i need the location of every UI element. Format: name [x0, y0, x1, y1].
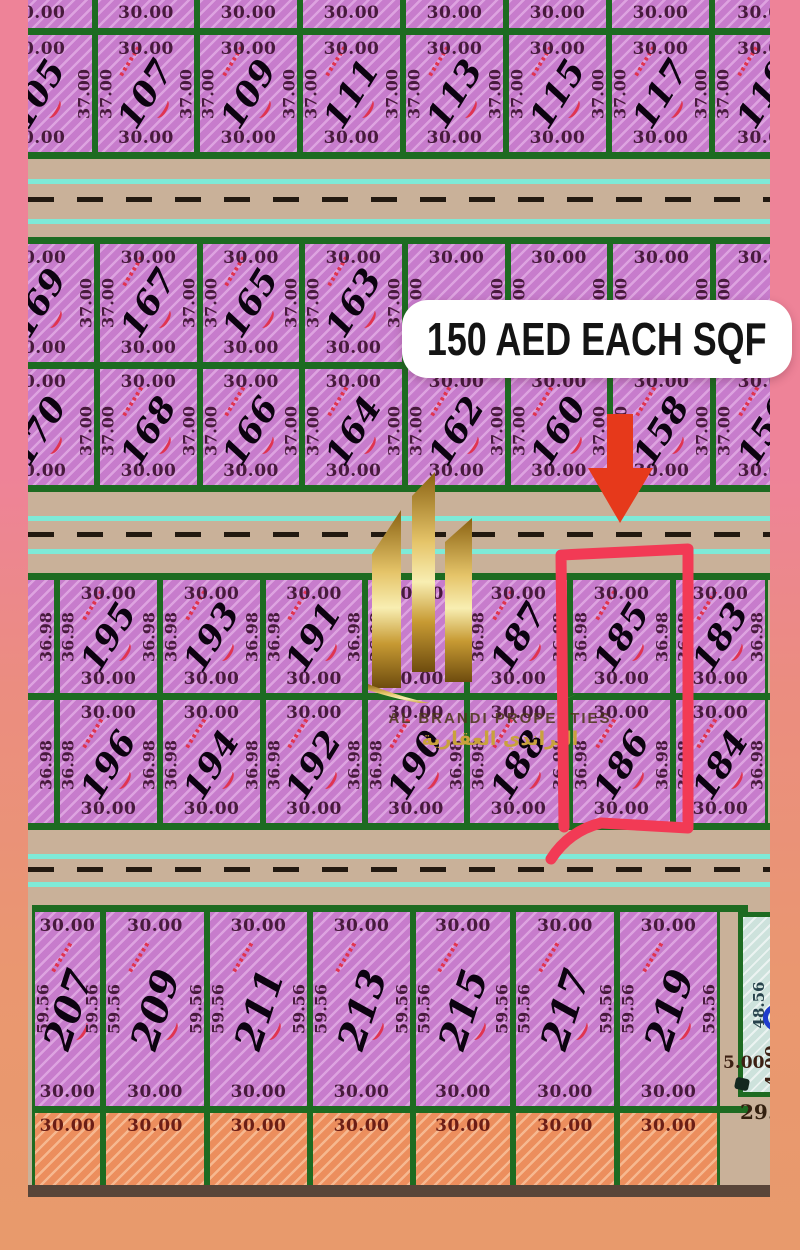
road: [28, 159, 770, 237]
plot-number: 113: [418, 52, 491, 136]
dimension-label: 30.00: [35, 1082, 100, 1102]
dimension-label: 30.00: [416, 1116, 510, 1136]
plot-number: 166: [214, 389, 287, 473]
dimension-label: 30.00: [620, 1082, 717, 1102]
plot-cell: 30.00: [32, 1113, 103, 1185]
plot-number: 164: [317, 389, 390, 473]
plot-block-row-207-219: 30.0030.0059.5659.5620730.0030.0059.5659…: [28, 905, 770, 1113]
dimension-label: 30.00: [200, 3, 297, 23]
plot-cell: 30.00: [513, 1113, 617, 1185]
side-dimension-label: 59.56: [209, 984, 228, 1034]
plot-cell: 30.0030.0059.5659.56211: [207, 905, 310, 1113]
dimension-label: 30.00: [715, 39, 770, 59]
road-stripe: [28, 179, 770, 184]
dimension-label: 30.00: [106, 916, 204, 936]
plot-block-cut-row-top: 30.0030.0030.0030.0030.0030.0030.0030.00: [28, 0, 770, 28]
corner-plot-mark-icon: [759, 1003, 770, 1033]
plot-cell: 30.00: [506, 0, 609, 28]
dimension-label: 30.00: [100, 372, 197, 392]
plot-number: 109: [212, 52, 285, 136]
dimension-label: 30.00: [516, 1116, 614, 1136]
plot-cell: 30.0030.0059.5659.56207: [32, 905, 103, 1113]
road-stripe: [28, 882, 770, 887]
plot-cell: 30.00: [413, 1113, 513, 1185]
side-dimension-label: 36.98: [37, 740, 56, 790]
plot-number: 167: [112, 261, 185, 345]
plot-cell: 30.0030.0059.5659.56209: [103, 905, 207, 1113]
corner-plot-side-label: 4.00: [763, 1045, 770, 1086]
plot-block-cut-row-bottom: 30.0030.0030.0030.0030.0030.0030.00: [28, 1113, 770, 1185]
plot-cell: 30.0030.0037.0037.00107: [95, 28, 197, 159]
dimension-label: 30.00: [163, 703, 260, 723]
dimension-label: 30.00: [620, 916, 717, 936]
dimension-label: 30.00: [303, 3, 400, 23]
dimension-label: 30.00: [416, 1082, 510, 1102]
dimension-label: 30.00: [35, 916, 100, 936]
block-border: [28, 237, 770, 244]
plot-cell: 30.0030.0059.5659.56213: [310, 905, 413, 1113]
plot-cell: 30.0030.0037.0037.00156: [713, 369, 770, 492]
plot-cell: 30.00: [207, 1113, 310, 1185]
plot-cell: 30.0030.0036.9836.98196: [57, 700, 160, 830]
plot-cell: 30.0030.0037.0037.00115: [506, 28, 609, 159]
plot-cell: 30.00: [617, 1113, 720, 1185]
road-stripe: [28, 219, 770, 224]
dimension-label: 30.00: [408, 248, 505, 268]
dimension-label: 30.00: [511, 248, 607, 268]
side-dimension-label: 59.56: [393, 984, 412, 1034]
plot-number: 162: [420, 389, 493, 473]
plot-cell: 30.0030.0037.0037.00105: [28, 28, 95, 159]
plot-number: 169: [28, 261, 75, 345]
side-dimension-label: 37.00: [77, 405, 96, 455]
plot-number: 215: [429, 963, 497, 1055]
dimension-label: 30.00: [305, 372, 402, 392]
plot-number: 209: [121, 963, 189, 1055]
plot-number: 105: [28, 52, 74, 136]
side-dimension-label: 59.56: [597, 984, 616, 1034]
plot-cell: 30.0030.0037.0037.00167: [97, 237, 200, 369]
plot-number: 219: [634, 963, 702, 1055]
plot-cell: 30.00: [300, 0, 403, 28]
plot-number: 194: [175, 723, 248, 807]
plot-cell: 30.00: [310, 1113, 413, 1185]
dimension-label: 30.00: [35, 1116, 100, 1136]
dimension-label: 30.00: [28, 3, 92, 23]
dimension-label: 30.00: [313, 1116, 410, 1136]
dimension-label: 30.00: [106, 1116, 204, 1136]
plot-cell: 30.00: [103, 1113, 207, 1185]
dimension-label: 30.00: [203, 338, 299, 358]
dimension-label: 30.00: [416, 916, 510, 936]
side-dimension-label: 36.98: [37, 611, 56, 661]
road-dimension-label: 29.: [740, 1100, 770, 1124]
plot-number: 195: [72, 595, 145, 679]
plot-cell: 30.0030.0059.5659.56215: [413, 905, 513, 1113]
side-dimension-label: 37.00: [77, 278, 96, 328]
dimension-label: 30.00: [98, 3, 194, 23]
side-dimension-label: 59.56: [415, 984, 434, 1034]
side-dimension-label: 59.56: [105, 984, 124, 1034]
dimension-label: 30.00: [612, 3, 709, 23]
plot-cell: 30.00: [712, 0, 770, 28]
dimension-label: 30.00: [715, 3, 770, 23]
corner-plot-symbol-icon: [734, 1077, 750, 1092]
dimension-label: 30.00: [210, 916, 307, 936]
dimension-label: 30.00: [406, 3, 503, 23]
plot-cell: 30.0030.0036.9836.98195: [57, 573, 160, 700]
plot-cell: 30.00: [95, 0, 197, 28]
side-dimension-label: 59.56: [290, 984, 309, 1034]
plot-cell: 30.0030.0037.0037.00170: [28, 369, 97, 492]
plot-cell: 30.0030.0059.5659.56219: [617, 905, 720, 1113]
side-dimension-label: 59.56: [187, 984, 206, 1034]
dimension-label: 30.00: [516, 916, 614, 936]
plot-cell: 30.00: [197, 0, 300, 28]
price-banner: 150 AED EACH SQF: [402, 300, 792, 378]
plot-cell: 36.9836.98: [28, 700, 57, 830]
plot-number: 170: [28, 389, 75, 473]
dimension-label: 30.00: [313, 916, 410, 936]
plot-cell: 30.00: [28, 0, 95, 28]
plot-number: 115: [521, 52, 594, 136]
highlight-arrow-icon: [588, 414, 654, 524]
side-dimension-label: 59.56: [619, 984, 638, 1034]
plot-cell: 30.0030.0037.0037.00169: [28, 237, 97, 369]
plot-cell: 30.0030.0037.0037.00166: [200, 369, 302, 492]
plot-number: 193: [175, 595, 248, 679]
plot-number: 217: [531, 963, 599, 1055]
plot-number: 117: [624, 52, 697, 136]
price-banner-text: 150 AED EACH SQF: [427, 312, 767, 366]
plot-cell: 30.0030.0037.0037.00111: [300, 28, 403, 159]
plot-number: 107: [109, 52, 182, 136]
side-dimension-label: 37.00: [75, 68, 94, 118]
side-dimension-label: 59.56: [493, 984, 512, 1034]
plot-cell: 30.00: [403, 0, 506, 28]
plot-number: 165: [214, 261, 287, 345]
corner-plot-front-label: 5.00: [723, 1053, 764, 1073]
plot-number: 207: [33, 963, 101, 1055]
dimension-label: 30.00: [210, 1082, 307, 1102]
plot-number: 213: [327, 963, 395, 1055]
plot-highlight-box: [545, 535, 725, 875]
plot-cell: 30.0030.0037.0037.00119: [712, 28, 770, 159]
plot-number: 211: [224, 963, 292, 1055]
dimension-label: 30.00: [106, 1082, 204, 1102]
plot-cell: 30.0030.0037.0037.00163: [302, 237, 405, 369]
plot-cell: 30.0030.0037.0037.00109: [197, 28, 300, 159]
plot-number: 111: [315, 52, 388, 136]
dimension-label: 30.00: [716, 248, 770, 268]
dimension-label: 30.00: [313, 1082, 410, 1102]
plot-number: 119: [728, 52, 770, 136]
block-border: [32, 1106, 748, 1113]
dimension-label: 30.00: [620, 1116, 717, 1136]
dimension-label: 30.00: [613, 248, 710, 268]
plot-number: 168: [112, 389, 185, 473]
plot-cell: 30.0030.0037.0037.00113: [403, 28, 506, 159]
block-border: [28, 152, 770, 159]
plot-cell: 30.0030.0037.0037.00168: [97, 369, 200, 492]
dimension-label: 30.00: [516, 1082, 614, 1102]
plot-number: 160: [522, 389, 595, 473]
dimension-label: 30.00: [60, 703, 157, 723]
map-edge-bar: [28, 1185, 770, 1197]
plot-number: 196: [72, 723, 145, 807]
dimension-label: 30.00: [28, 372, 94, 392]
dimension-label: 30.00: [203, 372, 299, 392]
plot-cell: 30.0030.0036.9836.98194: [160, 700, 263, 830]
plot-cell: 36.9836.98: [28, 573, 57, 700]
plot-block-row-105-119: 30.0030.0037.0037.0010530.0030.0037.0037…: [28, 28, 770, 159]
side-dimension-label: 59.56: [515, 984, 534, 1034]
plot-cell: 30.00: [609, 0, 712, 28]
side-dimension-label: 59.56: [312, 984, 331, 1034]
listing-image: 30.0030.0030.0030.0030.0030.0030.0030.00…: [0, 0, 800, 1250]
block-border: [32, 905, 748, 912]
plot-number: 163: [317, 261, 390, 345]
dimension-label: 30.00: [509, 3, 606, 23]
side-dimension-label: 59.56: [700, 984, 719, 1034]
plot-cell: 30.0030.0037.0037.00117: [609, 28, 712, 159]
plot-cell: 30.0030.0036.9836.98193: [160, 573, 263, 700]
dimension-label: 30.00: [210, 1116, 307, 1136]
plot-cell: 30.0030.0037.0037.00165: [200, 237, 302, 369]
block-border: [28, 28, 770, 35]
road-centerline: [28, 197, 770, 202]
plot-cell: 30.0030.0059.5659.56217: [513, 905, 617, 1113]
